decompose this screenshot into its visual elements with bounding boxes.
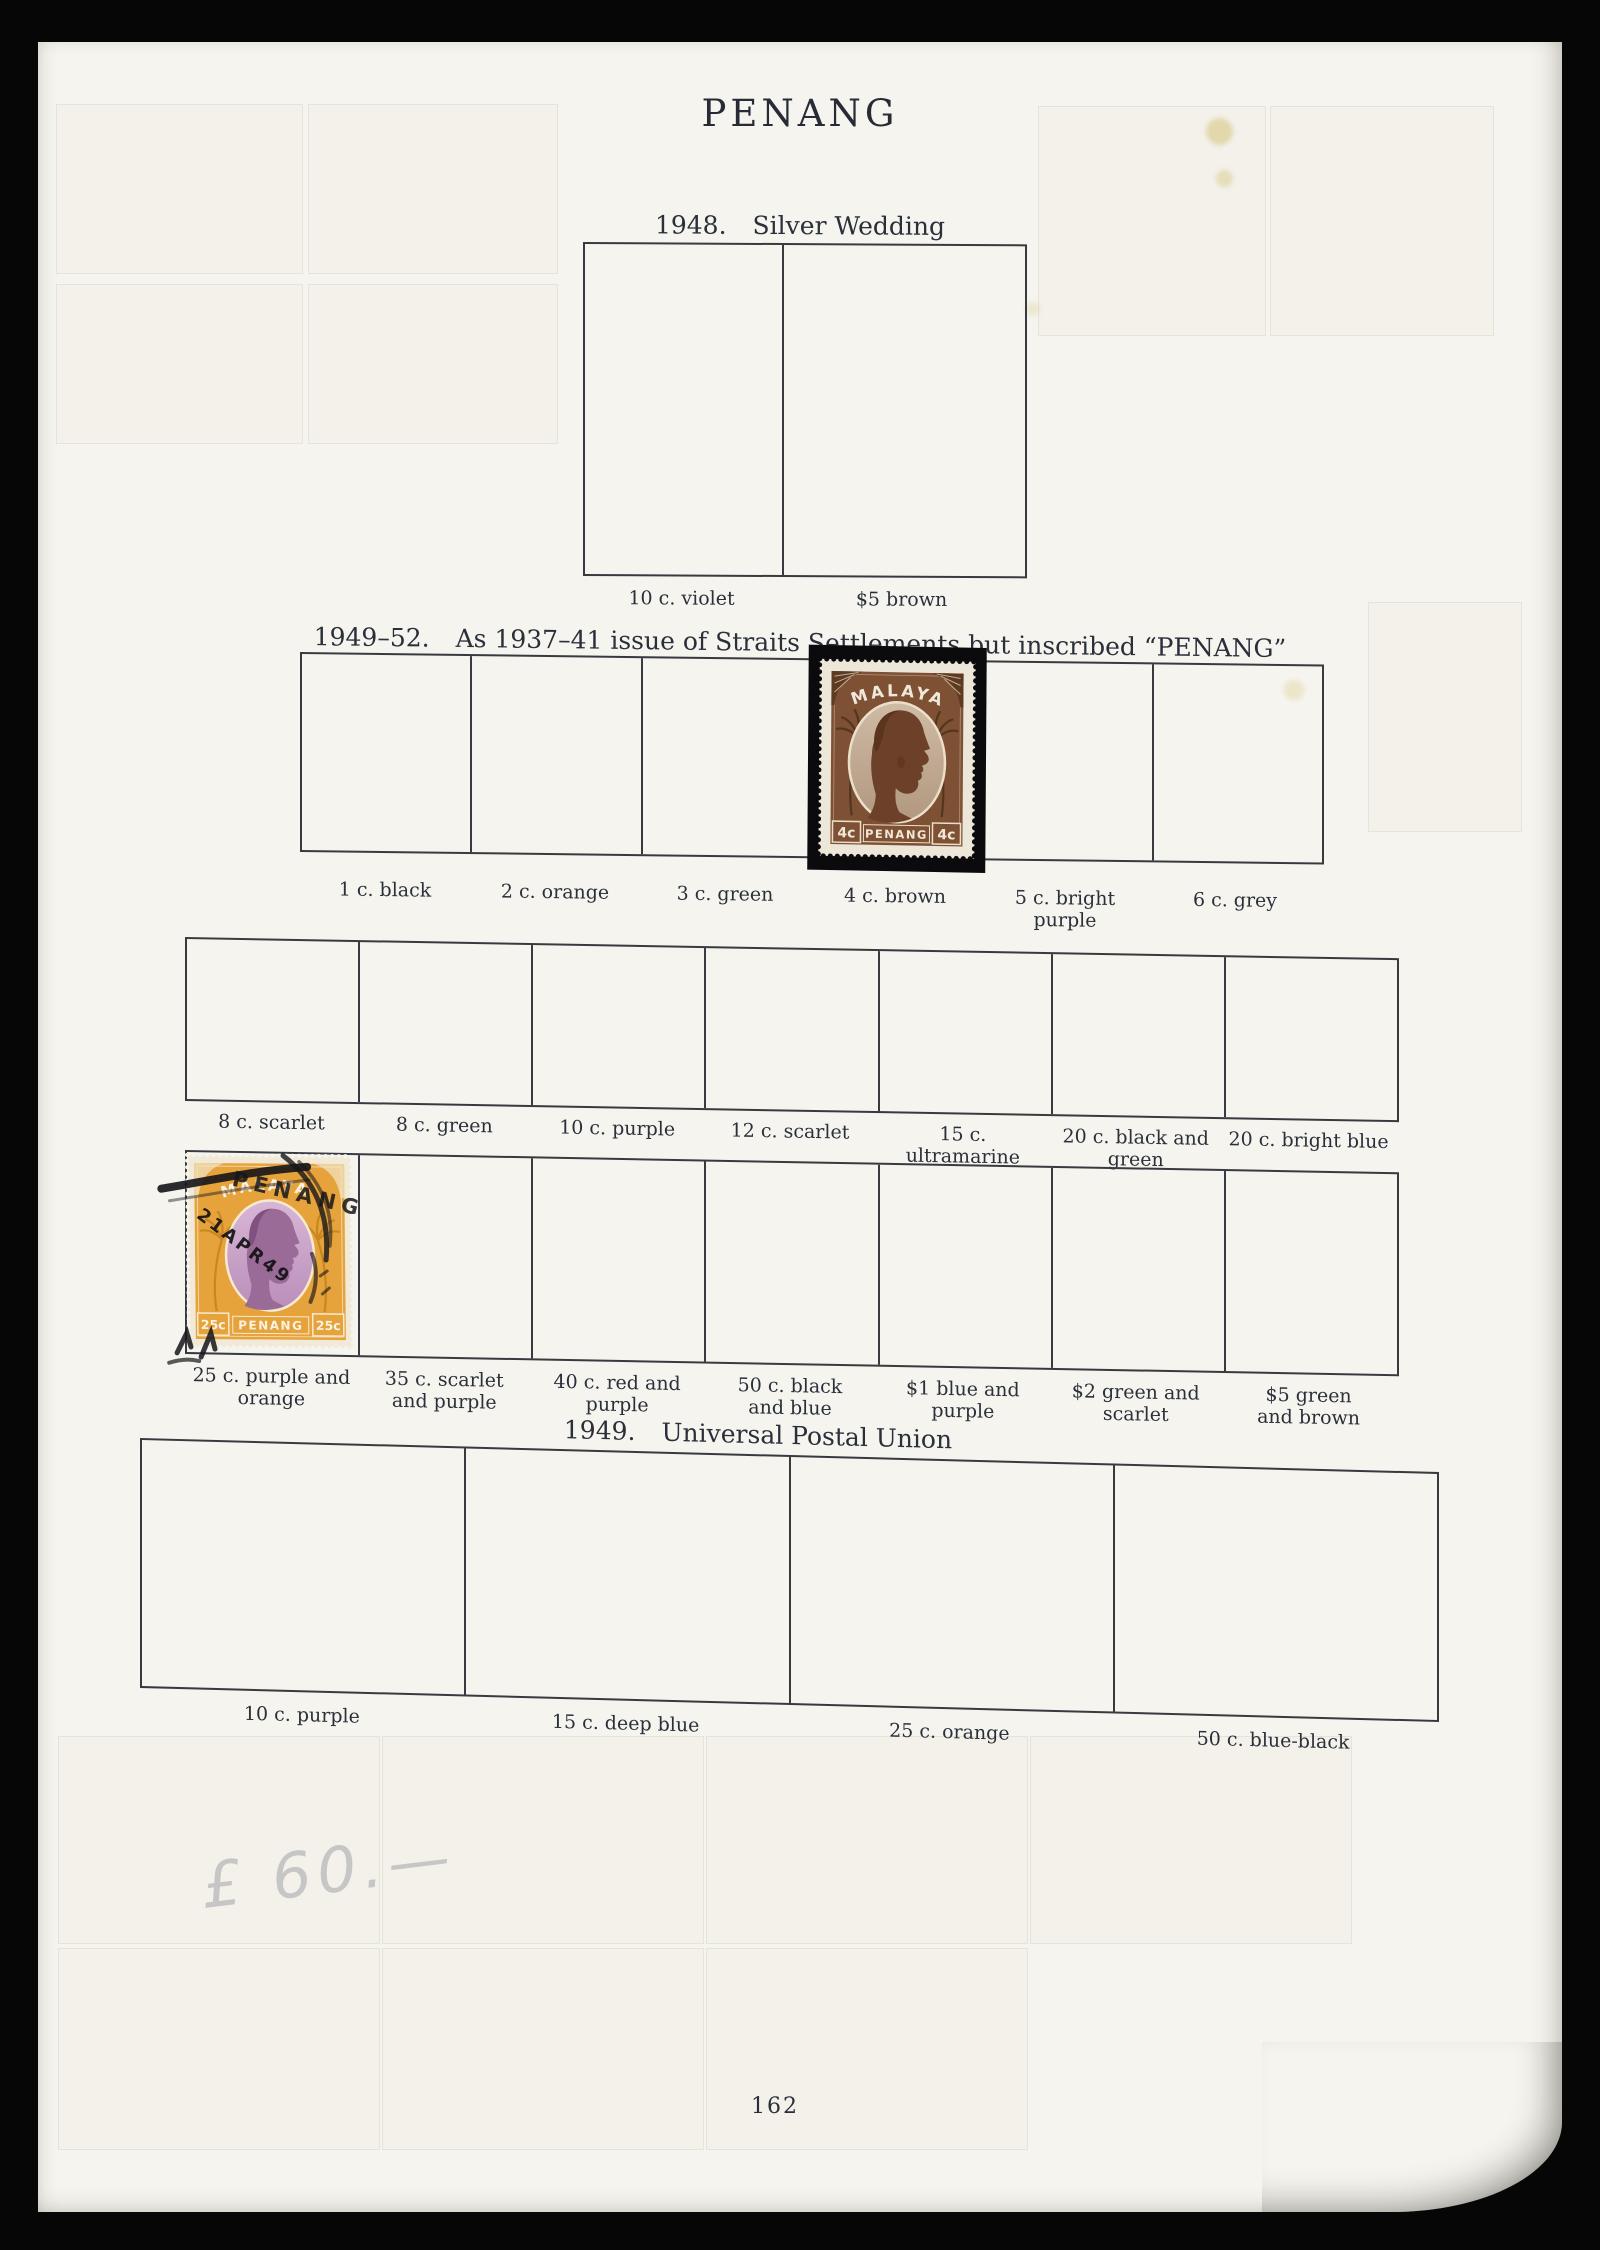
stamp-label: 20 c. bright blue (1222, 1128, 1395, 1175)
section-year: 1949. (564, 1415, 636, 1446)
stamp-value-text: 4c (837, 825, 855, 841)
ghost-impression (56, 284, 303, 444)
stamp-label: 20 c. black and green (1049, 1125, 1222, 1172)
stamp-label: 5 c. bright purple (980, 886, 1150, 932)
stamp-space-cell (533, 945, 706, 1108)
stamp-label: 35 c. scarlet and purple (358, 1367, 531, 1414)
stamp-label: 10 c. purple (140, 1700, 464, 1730)
stamp-space-cell (360, 1155, 533, 1358)
stamp-space-cell (791, 1457, 1115, 1711)
section-year: 1948. (655, 210, 727, 239)
ghost-impression (308, 284, 558, 444)
stamp-frame-grid (583, 242, 1027, 578)
stamp-frame-grid (185, 937, 1399, 1122)
stamp-label: 25 c. purple and orange (185, 1364, 358, 1411)
stamp-space-cell (1226, 1171, 1397, 1374)
paper-stain (1026, 302, 1040, 316)
stamp-space-cell (187, 939, 360, 1102)
stamp-label: $2 green and scarlet (1049, 1380, 1222, 1427)
section-title: Universal Postal Union (661, 1418, 952, 1455)
stamp-space-cell (466, 1449, 790, 1703)
stamp-territory-text: PENANG (238, 1318, 303, 1333)
stamp-space-cell (302, 654, 472, 852)
stamp-label: $5 brown (780, 588, 1023, 611)
ghost-impression (1030, 1736, 1352, 1944)
stamp-space-cell (585, 244, 784, 575)
stamp-space-cell (1154, 664, 1322, 862)
stamp-value-text: 25c (316, 1318, 341, 1333)
stamp-space-cell (983, 662, 1153, 860)
stamp-frame-grid (140, 1438, 1439, 1722)
stamp-frame-grid (185, 1150, 1399, 1376)
handwritten-price-note: £ 60.— (188, 1808, 518, 1968)
stamp-space-cell (706, 1162, 879, 1365)
stamp-space-cell (784, 245, 1025, 576)
stamp-space-cell (880, 1165, 1053, 1368)
stamp-space-cell (1053, 954, 1226, 1117)
ghost-impression (706, 1948, 1028, 2150)
stamp-label: $1 blue and purple (876, 1377, 1049, 1424)
stamp-space-cell (142, 1440, 466, 1694)
stamp-label: 1 c. black (300, 878, 470, 924)
stamp-label: 6 c. grey (1150, 888, 1320, 934)
stamp-space-cell (1053, 1168, 1226, 1371)
stamp-label: 3 c. green (640, 882, 810, 928)
stamp-label: 50 c. black and blue (704, 1374, 877, 1421)
page-number: 162 (13, 2094, 1537, 2119)
stamp-value-text: 25c (201, 1317, 226, 1332)
section-year: 1949–52. (314, 622, 430, 652)
section-title: Silver Wedding (753, 211, 946, 241)
stamp-space-cell (533, 1158, 706, 1361)
page-title: PENANG (38, 92, 1562, 135)
stamp-space-cell (1226, 957, 1397, 1120)
stamp-space-cell (880, 951, 1053, 1114)
stamp-space-cell (706, 948, 879, 1111)
stamp-label: 15 c. deep blue (464, 1708, 788, 1738)
stamp-territory-text: PENANG (865, 827, 928, 842)
stamp-label: 10 c. violet (583, 587, 780, 610)
ghost-impression (58, 1948, 380, 2150)
ghost-impression (706, 1736, 1028, 1944)
stamp-label: 40 c. red and purple (531, 1370, 704, 1417)
stamp-value-text: 4c (937, 827, 955, 843)
paper-stain (1216, 170, 1233, 187)
scan-background: PENANG 1948.Silver Wedding 10 c. violet … (0, 0, 1600, 2250)
stamp-space-cell (360, 942, 533, 1105)
stamp-label: $5 green and brown (1222, 1383, 1395, 1430)
svg-text:£ 60.—: £ 60.— (197, 1819, 460, 1923)
stamp-label: 15 c. ultramarine (876, 1122, 1049, 1169)
stamp-space-cell (643, 658, 813, 856)
stamp-label: 4 c. brown (810, 884, 980, 930)
album-page: PENANG 1948.Silver Wedding 10 c. violet … (38, 42, 1562, 2212)
stamp-4c-brown: MALAYA 4c 4c PENANG (807, 645, 987, 873)
stamp-space-cell (1115, 1466, 1437, 1720)
ghost-impression (382, 1948, 704, 2150)
stamp-space-cell (472, 656, 642, 854)
stamp-25c-orange: MALAYA 25c 25c PENANG (187, 1155, 353, 1348)
stamp-label: 2 c. orange (470, 880, 640, 926)
